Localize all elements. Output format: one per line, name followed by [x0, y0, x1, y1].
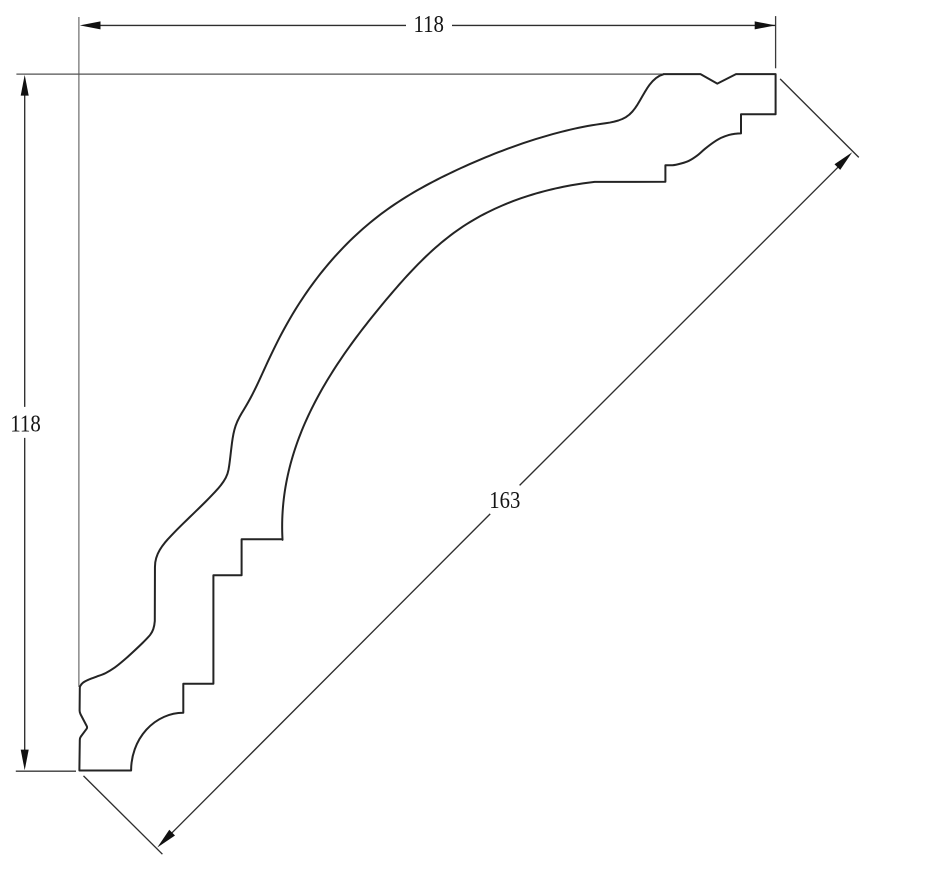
svg-text:118: 118 — [413, 12, 444, 38]
svg-text:118: 118 — [10, 412, 41, 438]
svg-text:163: 163 — [489, 488, 520, 514]
